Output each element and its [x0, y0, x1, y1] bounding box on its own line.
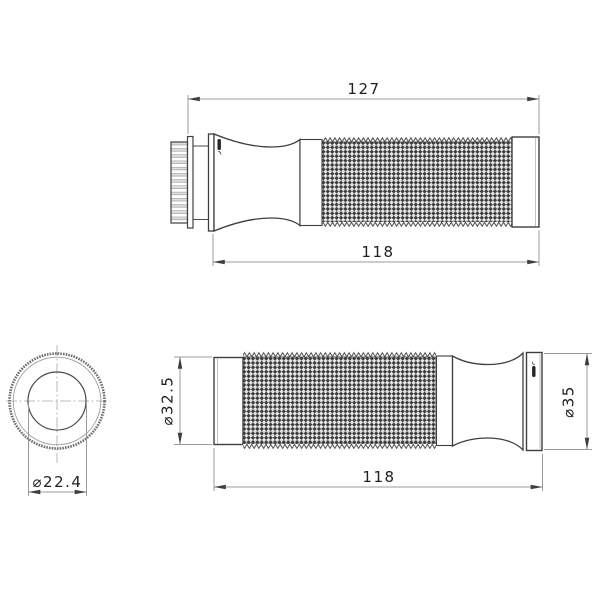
knurl-texture — [243, 357, 436, 444]
grip-technical-drawing: 127 118 — [0, 0, 600, 600]
knurl-band — [322, 137, 512, 227]
dimension-label-right-diameter: ⌀35 — [560, 385, 578, 418]
dimension-label-left-diameter: ⌀32.5 — [159, 376, 177, 426]
grip-end-cap — [512, 137, 539, 227]
side-view-outer: ⌀32.5 ⌀35 118 — [159, 352, 593, 491]
dimension-left-diameter — [174, 357, 212, 445]
dimension-overall-length — [188, 95, 539, 134]
knurl-band — [243, 352, 436, 450]
knurl-serrated-edge-bottom — [322, 222, 512, 227]
knurl-serrated-edge-top — [243, 352, 436, 357]
end-view: ⌀22.4 — [6, 345, 110, 496]
centerlines — [6, 345, 110, 463]
dimension-label-overall-length: 127 — [347, 80, 380, 98]
ribbed-collar — [171, 142, 188, 223]
grip-end-face — [209, 134, 215, 231]
mounting-flange — [188, 137, 194, 229]
handlebar-tube — [193, 146, 209, 220]
grip-neck-band — [300, 140, 322, 226]
dimension-label-grip-length: 118 — [362, 468, 395, 486]
side-view-throttle: 127 118 — [171, 80, 539, 266]
grip-neck-band — [437, 356, 453, 446]
technical-drawing-page: 127 118 — [0, 0, 600, 600]
knurl-serrated-edge-top — [322, 137, 512, 142]
grip-smooth-section — [453, 353, 524, 450]
dimension-label-grip-length: 118 — [361, 243, 394, 261]
grip-end-cap — [214, 358, 243, 445]
knurl-texture — [322, 142, 512, 222]
knurl-serrated-edge-bottom — [243, 444, 436, 449]
dimension-label-inner-diameter: ⌀22.4 — [33, 473, 83, 491]
grip-smooth-section — [214, 134, 300, 231]
